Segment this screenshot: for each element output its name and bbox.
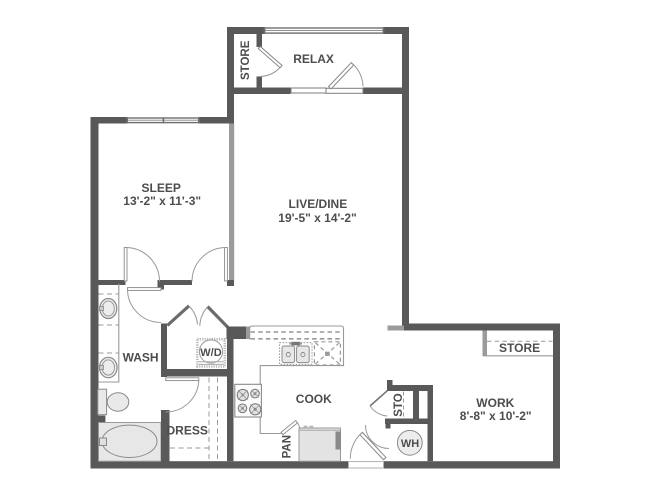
svg-text:RELAX: RELAX <box>293 52 334 66</box>
svg-text:STORE: STORE <box>499 341 540 355</box>
svg-text:SLEEP: SLEEP <box>142 181 181 195</box>
svg-text:WH: WH <box>401 438 419 450</box>
svg-text:13'-2" x 11'-3": 13'-2" x 11'-3" <box>123 194 201 208</box>
svg-text:WASH: WASH <box>123 350 159 364</box>
svg-text:8'-8" x 10'-2": 8'-8" x 10'-2" <box>460 409 532 423</box>
svg-text:STORE: STORE <box>240 40 252 80</box>
svg-text:PAN: PAN <box>281 435 293 458</box>
svg-text:DRESS: DRESS <box>167 424 208 438</box>
svg-text:COOK: COOK <box>296 392 332 406</box>
svg-text:LIVE/DINE: LIVE/DINE <box>289 197 348 211</box>
svg-text:WORK: WORK <box>476 396 514 410</box>
svg-text:19'-5" x 14'-2": 19'-5" x 14'-2" <box>278 211 356 225</box>
svg-text:W/D: W/D <box>200 347 221 359</box>
svg-text:STO: STO <box>393 393 405 416</box>
